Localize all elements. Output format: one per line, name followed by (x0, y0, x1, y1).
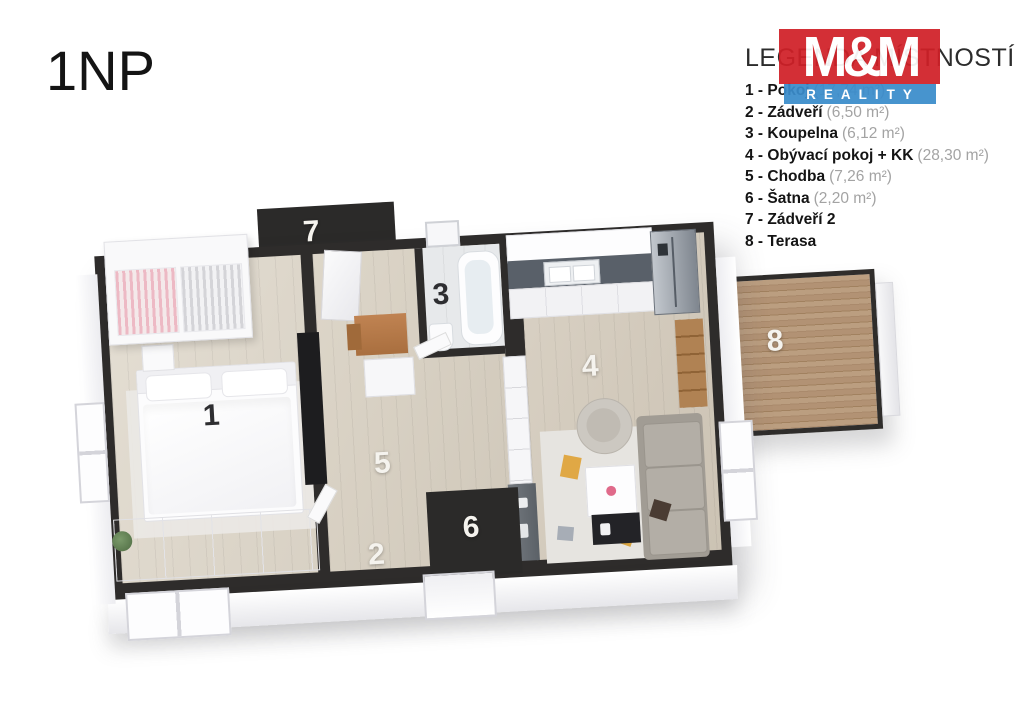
entry-door-step (423, 571, 497, 621)
legend-item-area: (6,12 m²) (842, 125, 905, 142)
bedroom-desk (113, 508, 320, 581)
bathroom-window (425, 220, 460, 248)
brand-logo-mm: M&M (779, 29, 940, 84)
window-bay-south (125, 587, 232, 641)
wardrobe-clothes-white (180, 263, 246, 332)
room-number-5: 5 (373, 446, 392, 481)
room-number-3: 3 (432, 278, 451, 313)
pillow (145, 372, 212, 402)
sofa (636, 413, 710, 560)
window-east (718, 420, 758, 522)
legend-item-label: 4 - Obývací pokoj + KK (745, 147, 913, 164)
window-west (74, 402, 110, 504)
legend-item-area: (28,30 m²) (917, 147, 989, 164)
hall-chair (346, 324, 361, 351)
flower-vase (606, 486, 617, 497)
brand-logo: M&M REALITY (779, 29, 941, 104)
room-number-4: 4 (581, 349, 600, 384)
coffee-table (591, 512, 641, 545)
legend-item-area: (6,50 m²) (827, 104, 890, 121)
door-leaf (321, 250, 362, 322)
fridge (650, 229, 701, 315)
legend-item: 3 - Koupelna(6,12 m²) (745, 126, 1015, 141)
room-number-7: 7 (302, 215, 321, 250)
page: 1NP LEGENDA MÍSTNOSTÍ 1 - Pokoj(17,74 m²… (0, 0, 1024, 724)
legend-item: 2 - Zádveří(6,50 m²) (745, 105, 1015, 120)
legend-item-label: 3 - Koupelna (745, 125, 838, 142)
wardrobe (103, 234, 253, 346)
pillow (221, 368, 288, 398)
room-number-1: 1 (202, 399, 221, 434)
room-number-6: 6 (462, 510, 481, 545)
room-number-2: 2 (367, 538, 386, 573)
legend-item: 4 - Obývací pokoj + KK(28,30 m²) (745, 148, 1015, 163)
kitchen-sink (543, 259, 600, 286)
hall-desk (354, 313, 408, 356)
bookshelf (675, 319, 708, 408)
page-title: 1NP (46, 38, 155, 103)
legend-item-label: 5 - Chodba (745, 168, 825, 185)
bed (136, 361, 304, 522)
bathtub (457, 250, 504, 346)
legend-item-area: (7,26 m²) (829, 168, 892, 185)
nightstand (141, 344, 174, 372)
hall-cabinet (363, 357, 415, 398)
legend-item: 5 - Chodba(7,26 m²) (745, 169, 1015, 184)
room-number-8: 8 (766, 324, 785, 359)
brand-logo-mm-text: M&M (803, 31, 917, 81)
wardrobe-clothes-pink (114, 267, 180, 336)
dining-table (585, 465, 638, 518)
legend-item-label: 2 - Zádveří (745, 104, 823, 121)
floor-plan: 1 2 3 4 5 6 7 8 (73, 189, 927, 685)
